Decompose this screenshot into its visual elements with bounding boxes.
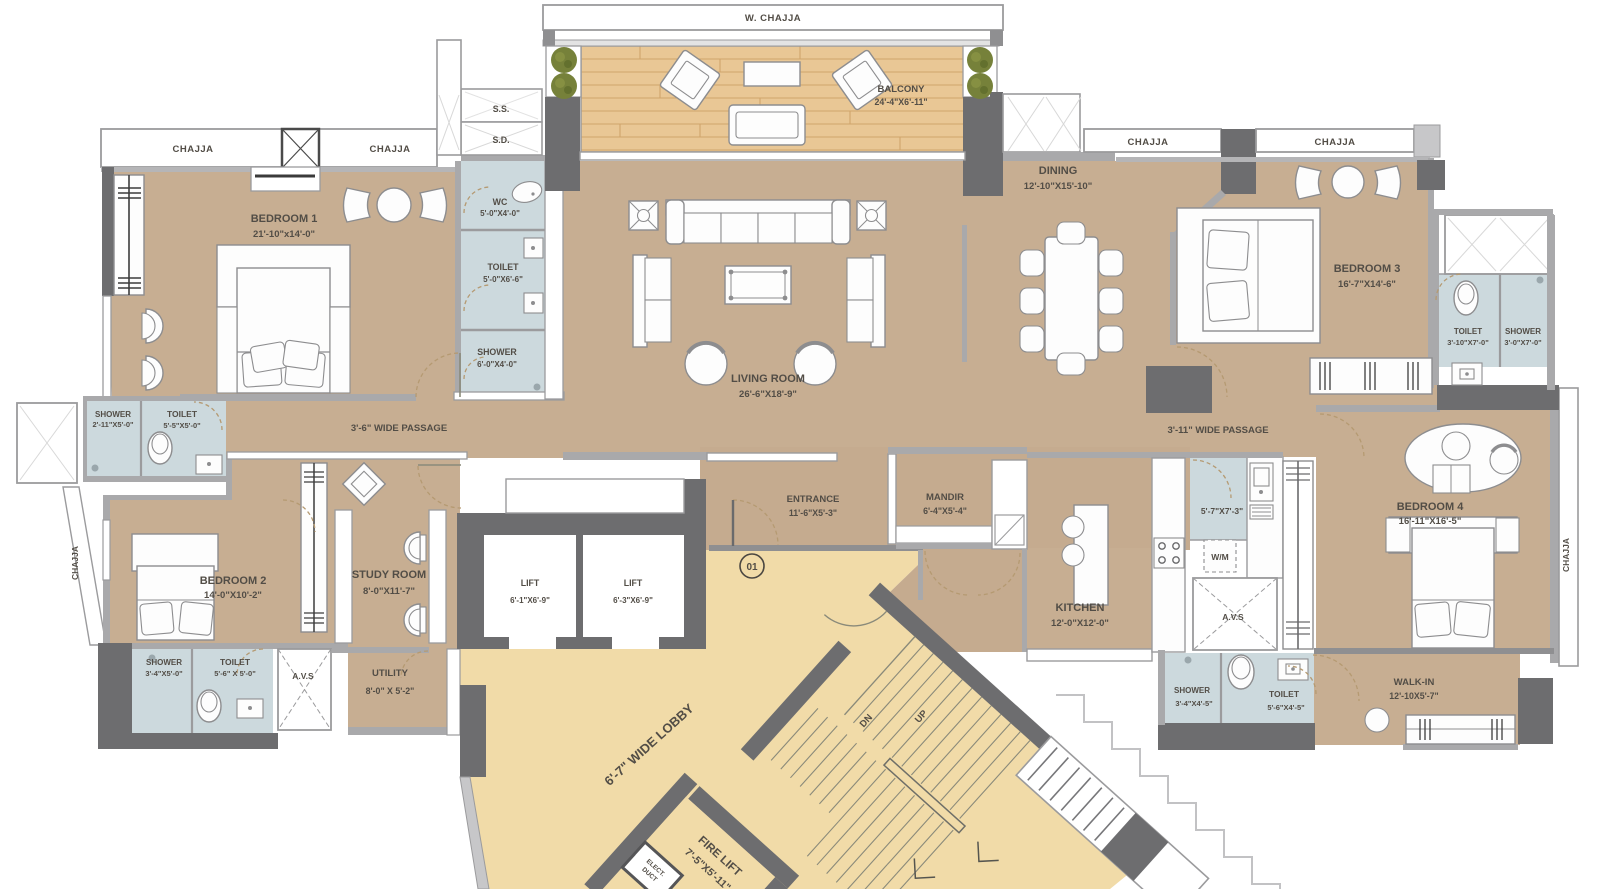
svg-text:16'-7"X14'-6": 16'-7"X14'-6": [1338, 279, 1396, 290]
svg-text:SHOWER: SHOWER: [1505, 327, 1541, 336]
svg-text:A.V.S: A.V.S: [292, 671, 314, 681]
svg-text:3'-11" WIDE PASSAGE: 3'-11" WIDE PASSAGE: [1167, 425, 1268, 436]
svg-text:16'-11"X16'-5": 16'-11"X16'-5": [1399, 516, 1462, 527]
svg-text:5'-7"X7'-3": 5'-7"X7'-3": [1201, 506, 1243, 516]
svg-text:5'-6"X4'-5": 5'-6"X4'-5": [1267, 703, 1305, 712]
svg-text:CHAJJA: CHAJJA: [70, 546, 80, 580]
svg-text:SHOWER: SHOWER: [477, 347, 517, 357]
svg-text:21'-10"x14'-0": 21'-10"x14'-0": [253, 229, 315, 240]
svg-text:W. CHAJJA: W. CHAJJA: [745, 13, 801, 24]
svg-text:LIFT: LIFT: [521, 578, 540, 588]
svg-text:STUDY ROOM: STUDY ROOM: [352, 569, 426, 581]
svg-text:BEDROOM 1: BEDROOM 1: [251, 213, 318, 225]
svg-text:WC: WC: [493, 197, 508, 207]
svg-text:ENTRANCE: ENTRANCE: [787, 494, 840, 505]
svg-text:DINING: DINING: [1039, 165, 1078, 177]
svg-text:TOILET: TOILET: [167, 409, 198, 419]
svg-text:S.S.: S.S.: [493, 104, 510, 114]
svg-text:3'-0"X7'-0": 3'-0"X7'-0": [1504, 338, 1542, 347]
svg-text:24'-4"X6'-11": 24'-4"X6'-11": [874, 97, 927, 107]
svg-text:26'-6"X18'-9": 26'-6"X18'-9": [739, 389, 797, 400]
svg-text:6'-1"X6'-9": 6'-1"X6'-9": [510, 596, 550, 605]
svg-text:CHAJJA: CHAJJA: [369, 144, 410, 155]
svg-text:SHOWER: SHOWER: [146, 658, 182, 667]
svg-text:5'-5"X5'-0": 5'-5"X5'-0": [163, 421, 201, 430]
svg-text:LIFT: LIFT: [624, 578, 643, 588]
svg-text:3'-10"X7'-0": 3'-10"X7'-0": [1447, 338, 1489, 347]
svg-text:6'-3"X6'-9": 6'-3"X6'-9": [613, 596, 653, 605]
svg-text:2'-11"X5'-0": 2'-11"X5'-0": [92, 420, 134, 429]
svg-text:MANDIR: MANDIR: [926, 492, 964, 503]
svg-text:WALK-IN: WALK-IN: [1394, 677, 1435, 688]
svg-text:6'-0"X4'-0": 6'-0"X4'-0": [477, 360, 517, 369]
svg-text:CHAJJA: CHAJJA: [172, 144, 213, 155]
svg-text:12'-10"X15'-10": 12'-10"X15'-10": [1024, 181, 1092, 192]
svg-text:S.D.: S.D.: [492, 135, 509, 145]
svg-text:TOILET: TOILET: [1269, 689, 1300, 699]
svg-text:BEDROOM 3: BEDROOM 3: [1334, 263, 1401, 275]
svg-text:3'-4"X4'-5": 3'-4"X4'-5": [1175, 699, 1213, 708]
svg-text:TOILET: TOILET: [487, 262, 519, 272]
svg-text:CHAJJA: CHAJJA: [1314, 137, 1355, 148]
svg-text:6'-4"X5'-4": 6'-4"X5'-4": [923, 506, 967, 516]
svg-text:BEDROOM 4: BEDROOM 4: [1397, 501, 1465, 513]
svg-text:W/M: W/M: [1211, 552, 1228, 562]
svg-text:TOILET: TOILET: [1454, 327, 1482, 336]
svg-text:8'-0"X11'-7": 8'-0"X11'-7": [363, 586, 415, 597]
svg-text:14'-0"X10'-2": 14'-0"X10'-2": [204, 590, 262, 601]
svg-text:5'-6" X 5'-0": 5'-6" X 5'-0": [214, 669, 256, 678]
svg-text:KITCHEN: KITCHEN: [1056, 602, 1105, 614]
svg-text:BALCONY: BALCONY: [878, 84, 926, 95]
svg-text:UTILITY: UTILITY: [372, 668, 409, 679]
svg-text:BEDROOM 2: BEDROOM 2: [200, 575, 267, 587]
svg-text:CHAJJA: CHAJJA: [1127, 137, 1168, 148]
svg-text:3'-4"X5'-0": 3'-4"X5'-0": [145, 669, 183, 678]
svg-text:A.V.S: A.V.S: [1222, 612, 1244, 622]
svg-text:SHOWER: SHOWER: [95, 410, 131, 419]
svg-text:5'-0"X6'-6": 5'-0"X6'-6": [483, 275, 523, 284]
svg-text:LIVING ROOM: LIVING ROOM: [731, 373, 805, 385]
svg-text:11'-6"X5'-3": 11'-6"X5'-3": [789, 508, 837, 518]
svg-text:TOILET: TOILET: [220, 657, 251, 667]
svg-text:8'-0" X 5'-2": 8'-0" X 5'-2": [366, 686, 415, 696]
svg-text:3'-6" WIDE PASSAGE: 3'-6" WIDE PASSAGE: [351, 423, 447, 434]
svg-text:CHAJJA: CHAJJA: [1561, 538, 1571, 572]
svg-text:12'-10X5'-7": 12'-10X5'-7": [1389, 691, 1438, 701]
svg-text:12'-0"X12'-0": 12'-0"X12'-0": [1051, 618, 1109, 629]
svg-text:5'-0"X4'-0": 5'-0"X4'-0": [480, 209, 520, 218]
svg-text:SHOWER: SHOWER: [1174, 686, 1210, 695]
svg-text:01: 01: [746, 562, 758, 573]
